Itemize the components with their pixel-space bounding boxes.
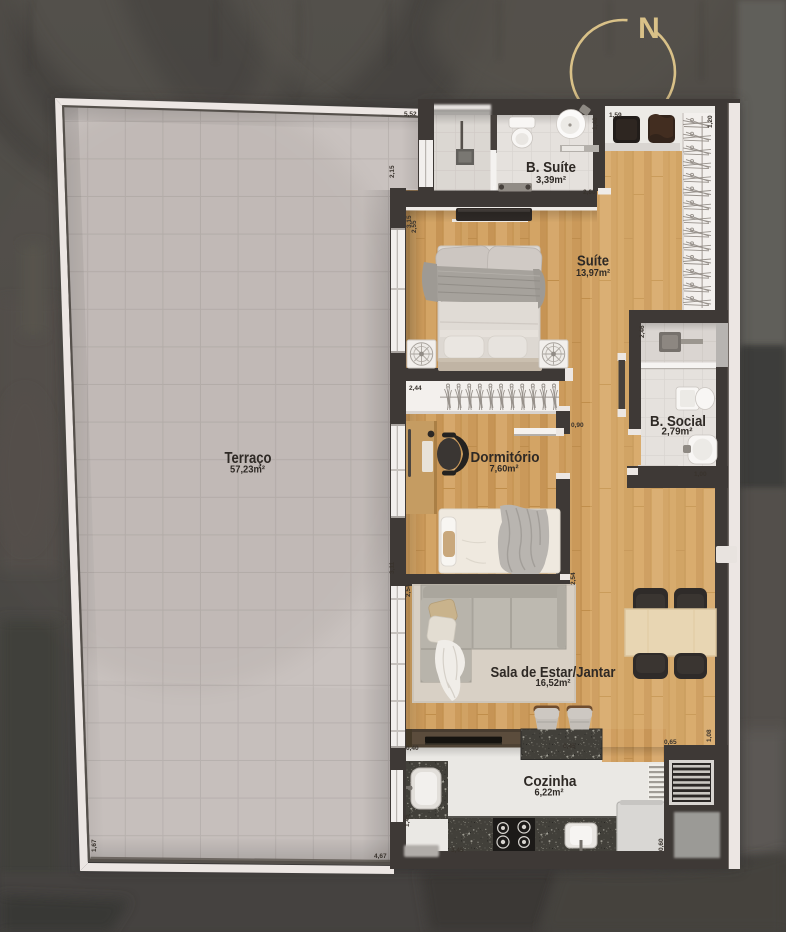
svg-text:N: N [638,12,660,45]
svg-text:0,90: 0,90 [571,422,584,429]
svg-text:16,52m²: 16,52m² [536,678,572,689]
svg-text:3,45: 3,45 [451,847,464,854]
svg-text:0,60: 0,60 [658,838,665,851]
svg-text:1,40: 1,40 [592,117,599,130]
svg-text:Suíte: Suíte [577,253,609,270]
svg-text:2,55: 2,55 [411,220,418,233]
svg-text:3,11: 3,11 [389,561,396,574]
svg-text:4,67: 4,67 [374,853,387,860]
svg-text:0,65: 0,65 [664,739,677,746]
svg-text:2,15: 2,15 [389,165,396,178]
svg-text:1,59: 1,59 [609,112,622,119]
svg-text:1,20: 1,20 [707,115,714,128]
svg-text:2,79m²: 2,79m² [662,427,694,438]
svg-text:3,39m²: 3,39m² [536,174,566,186]
svg-text:1,45: 1,45 [404,814,411,827]
svg-text:2,44: 2,44 [409,385,422,392]
svg-text:7,60m²: 7,60m² [490,464,519,475]
svg-text:1,00: 1,00 [694,471,707,478]
svg-text:2,46: 2,46 [639,325,646,338]
svg-text:6,22m²: 6,22m² [535,788,565,799]
svg-text:13,97m²: 13,97m² [576,268,611,279]
svg-text:2,60: 2,60 [583,189,596,196]
svg-text:5,52: 5,52 [404,111,417,118]
svg-text:2,54: 2,54 [405,584,412,597]
svg-text:1,67: 1,67 [91,839,98,852]
svg-text:1,08: 1,08 [706,729,713,742]
svg-text:2,54: 2,54 [570,572,577,585]
svg-text:0,45: 0,45 [563,743,576,750]
svg-text:0,40: 0,40 [406,745,419,752]
svg-text:57,23m²: 57,23m² [230,465,266,476]
